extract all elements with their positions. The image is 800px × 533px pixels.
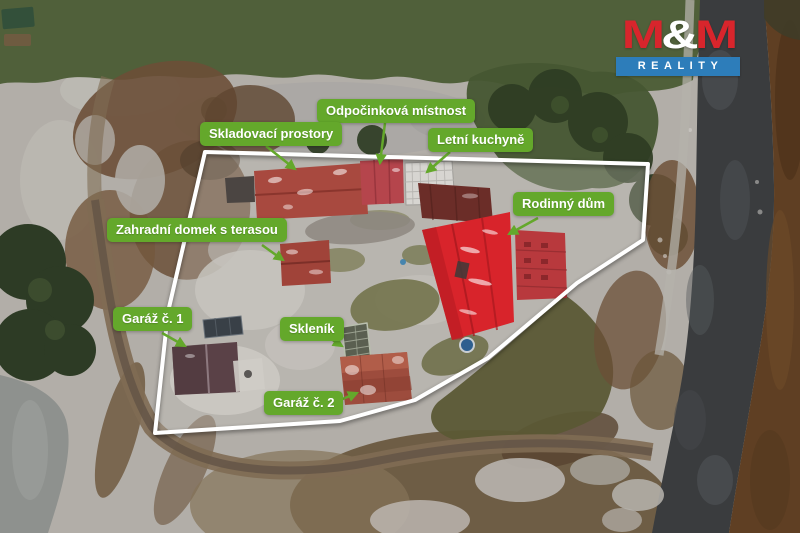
storage-building-roof: [254, 163, 368, 220]
family-house-wing-roof: [515, 230, 567, 300]
annotation-label-storage: Skladovací prostory: [200, 122, 342, 146]
logo-m2: M: [695, 13, 734, 57]
pool: [460, 338, 474, 352]
wood-logs: [4, 34, 31, 46]
tarp: [1, 7, 35, 30]
garage-1-roof: [172, 342, 240, 395]
shed-roof: [225, 176, 255, 203]
logo-ampersand: &: [661, 13, 695, 57]
annotation-label-summer-kitchen: Letní kuchyně: [428, 128, 533, 152]
terrace: [233, 358, 265, 392]
rest-room-roof: [360, 159, 404, 205]
agency-logo-subtitle: REALITY: [616, 57, 740, 76]
annotation-label-garage-1: Garáž č. 1: [113, 307, 192, 331]
garage-2-roof: [340, 352, 412, 405]
agency-logo: M&M REALITY: [616, 14, 740, 76]
logo-m1: M: [622, 13, 661, 57]
annex-roof: [418, 183, 493, 223]
annotation-label-garden-house: Zahradní domek s terasou: [107, 218, 287, 242]
agency-logo-mm: M&M: [597, 14, 758, 56]
annotation-label-family-house: Rodinný dům: [513, 192, 614, 216]
garden-house-roof: [280, 240, 331, 286]
annotation-label-greenhouse: Skleník: [280, 317, 344, 341]
aerial-photo: [0, 0, 800, 533]
solar-panel: [203, 316, 243, 338]
aerial-photo-viewport: Odpočinková místnost Skladovací prostory…: [0, 0, 800, 533]
blue-barrel: [400, 259, 406, 265]
annotation-label-rest-room: Odpočinková místnost: [317, 99, 475, 123]
annotation-label-garage-2: Garáž č. 2: [264, 391, 343, 415]
